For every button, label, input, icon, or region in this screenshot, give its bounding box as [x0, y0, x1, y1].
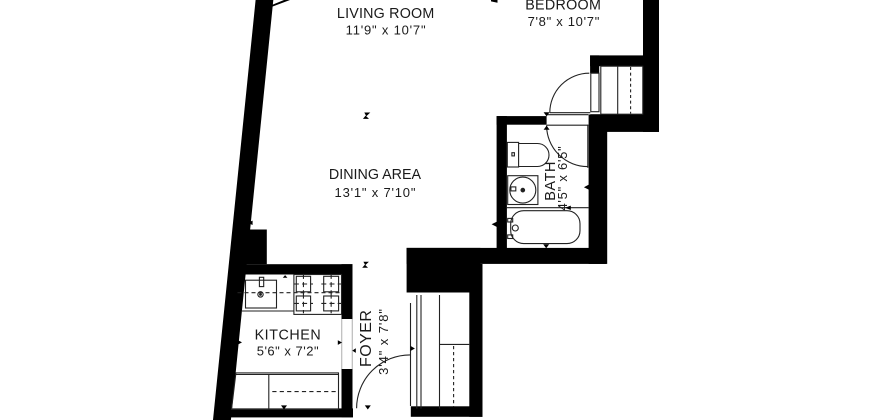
svg-text:FOYER: FOYER	[358, 310, 375, 367]
svg-text:4'5" x 6'5": 4'5" x 6'5"	[555, 145, 570, 210]
svg-text:DINING AREA: DINING AREA	[329, 167, 422, 183]
svg-text:5'6" x 7'2": 5'6" x 7'2"	[257, 344, 319, 359]
svg-text:11'9" x 10'7": 11'9" x 10'7"	[346, 22, 427, 37]
svg-text:BEDROOM: BEDROOM	[525, 0, 601, 13]
svg-text:7'8" x 10'7": 7'8" x 10'7"	[528, 14, 600, 29]
svg-text:KITCHEN: KITCHEN	[255, 328, 322, 344]
svg-text:LIVING ROOM: LIVING ROOM	[337, 6, 435, 22]
svg-text:3'4" x 7'8": 3'4" x 7'8"	[376, 308, 391, 375]
svg-text:13'1" x 7'10": 13'1" x 7'10"	[335, 185, 417, 200]
